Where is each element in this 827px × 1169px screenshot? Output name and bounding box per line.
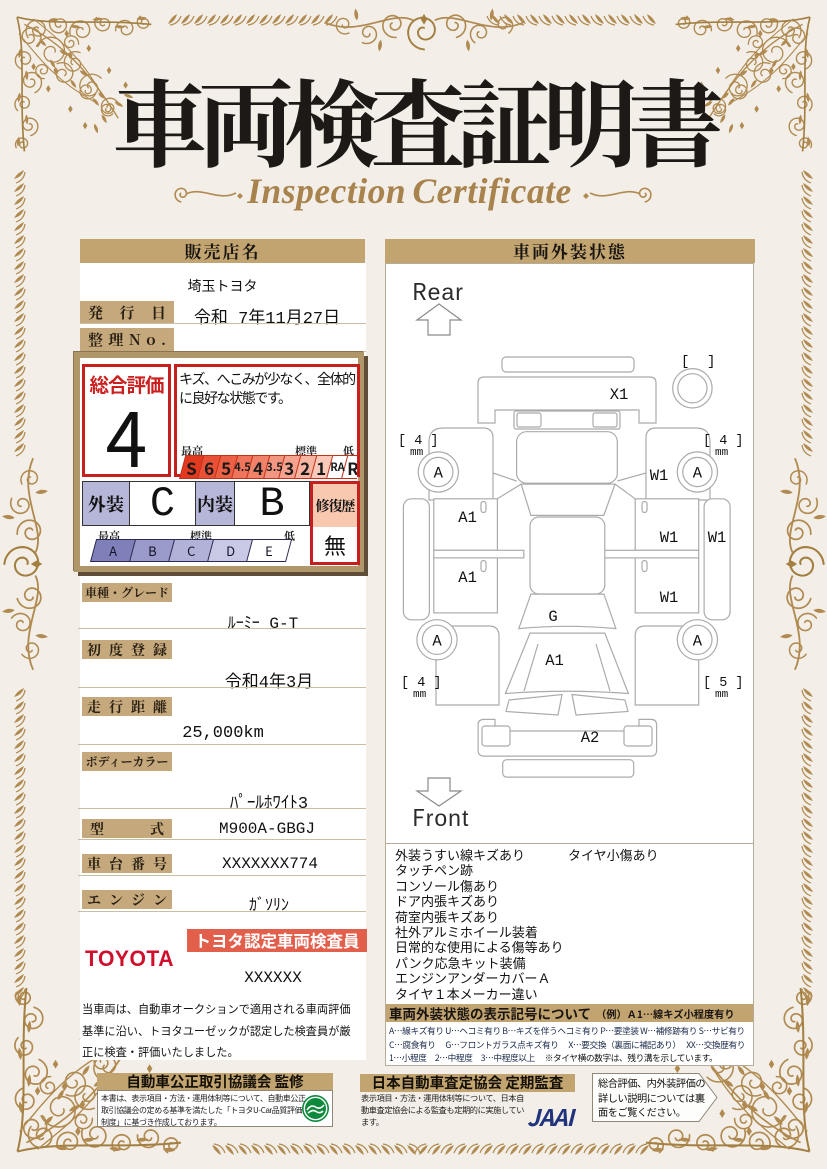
svg-text:Front: Front [412, 799, 469, 833]
svg-text:mm: mm [715, 689, 729, 701]
svg-text:A2: A2 [581, 729, 600, 747]
svg-text:W1: W1 [660, 529, 679, 547]
svg-text:mm: mm [410, 447, 424, 459]
svg-text:A: A [693, 632, 703, 650]
svg-text:X1: X1 [610, 386, 629, 404]
svg-text:A: A [434, 465, 444, 483]
svg-text:W1: W1 [708, 529, 727, 547]
svg-text:G: G [548, 608, 557, 626]
svg-text:W1: W1 [660, 589, 679, 607]
svg-text:[: [ [681, 354, 689, 370]
svg-text:A1: A1 [545, 652, 564, 670]
svg-text:]: ] [707, 354, 715, 370]
svg-text:mm: mm [715, 447, 729, 459]
svg-text:A1: A1 [458, 569, 477, 587]
svg-text:Rear: Rear [412, 273, 464, 307]
svg-text:A: A [693, 465, 703, 483]
svg-text:A1: A1 [458, 509, 477, 527]
svg-text:mm: mm [413, 689, 427, 701]
svg-text:A: A [432, 632, 442, 650]
svg-text:W1: W1 [650, 467, 669, 485]
